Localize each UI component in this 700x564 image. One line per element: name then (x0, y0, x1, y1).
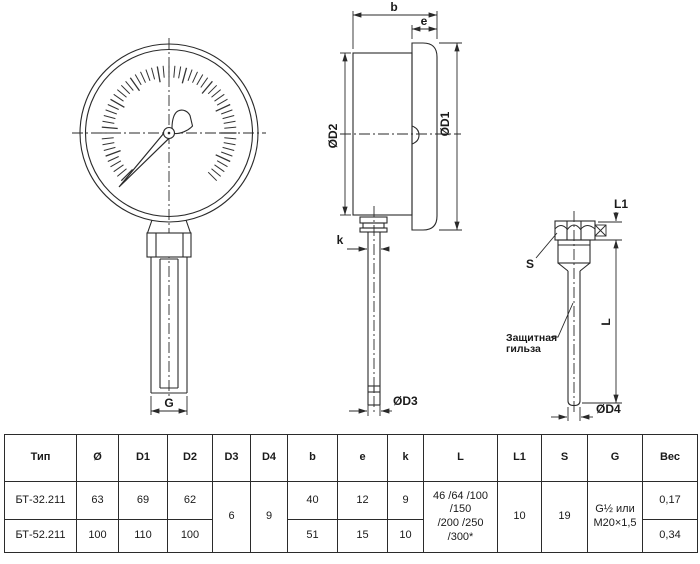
dim-label-s: S (526, 257, 534, 271)
col-header-e: e (338, 435, 388, 482)
cell-d3-merged: 6 (213, 482, 251, 553)
cell-diameter: 100 (77, 520, 119, 553)
cell-d1: 69 (119, 482, 168, 520)
cell-type: БТ-52.211 (5, 520, 77, 553)
s-leader-line (536, 233, 557, 258)
cell-e: 12 (338, 482, 388, 520)
col-header-d1: D1 (119, 435, 168, 482)
cell-diameter: 63 (77, 482, 119, 520)
cell-b: 40 (288, 482, 338, 520)
table-row: БТ-32.211 63 69 62 6 9 40 12 9 46 /64 /1… (5, 482, 698, 520)
dim-d4 (551, 407, 593, 421)
bezel-side (412, 43, 437, 230)
cell-weight: 0,34 (643, 520, 698, 553)
cell-type: БТ-32.211 (5, 482, 77, 520)
dim-label-d3: ØD3 (393, 394, 418, 408)
hex-nut-front (147, 233, 191, 257)
cell-weight: 0,17 (643, 482, 698, 520)
col-header-k: k (388, 435, 424, 482)
col-header-g: G (588, 435, 643, 482)
dim-d3 (349, 398, 392, 416)
col-header-l: L (424, 435, 498, 482)
cell-k: 9 (388, 482, 424, 520)
thermometer-datasheet: G b (0, 0, 700, 564)
cell-d2: 62 (168, 482, 213, 520)
dim-label-e: e (421, 14, 428, 28)
cell-b: 51 (288, 520, 338, 553)
dim-label-l1: L1 (614, 197, 628, 211)
cell-d4-merged: 9 (251, 482, 288, 553)
cell-d2: 100 (168, 520, 213, 553)
thread-stub (595, 225, 606, 236)
cell-d1: 110 (119, 520, 168, 553)
bezel-notch (412, 126, 419, 144)
col-header-b: b (288, 435, 338, 482)
col-header-d4: D4 (251, 435, 288, 482)
col-header-l1: L1 (498, 435, 542, 482)
col-header-weight: Вес (643, 435, 698, 482)
side-view: b e ØD2 ØD1 k (326, 0, 462, 416)
cell-l1-merged: 10 (498, 482, 542, 553)
dim-label-d4: ØD4 (596, 402, 621, 416)
dimension-table: Тип Ø D1 D2 D3 D4 b e k L L1 S G Вес БТ-… (4, 434, 698, 553)
col-header-type: Тип (5, 435, 77, 482)
front-view: G (72, 38, 266, 415)
col-header-diameter: Ø (77, 435, 119, 482)
dim-label-g: G (164, 396, 173, 410)
col-header-d2: D2 (168, 435, 213, 482)
dim-label-k: k (337, 233, 344, 247)
gauge-needle (119, 130, 172, 187)
dim-label-l: L (599, 318, 613, 325)
cell-s-merged: 19 (542, 482, 588, 553)
cell-e: 15 (338, 520, 388, 553)
dim-label-d1: ØD1 (438, 111, 452, 136)
technical-drawing: G b (0, 0, 700, 432)
dim-label-b: b (390, 0, 397, 14)
sleeve-label-line2: гильза (506, 343, 541, 355)
cell-k: 10 (388, 520, 424, 553)
table-header-row: Тип Ø D1 D2 D3 D4 b e k L L1 S G Вес (5, 435, 698, 482)
col-header-d3: D3 (213, 435, 251, 482)
dim-label-d2: ØD2 (326, 123, 340, 148)
needle-counterweight (172, 110, 193, 133)
sleeve-hex (555, 221, 595, 240)
col-header-s: S (542, 435, 588, 482)
sleeve-view: L1 L ØD4 S Защитная гильза (506, 197, 628, 421)
cell-l-merged: 46 /64 /100 /150 /200 /250 /300* (424, 482, 498, 553)
cell-g-merged: G½ или M20×1,5 (588, 482, 643, 553)
neck-side (360, 217, 387, 232)
